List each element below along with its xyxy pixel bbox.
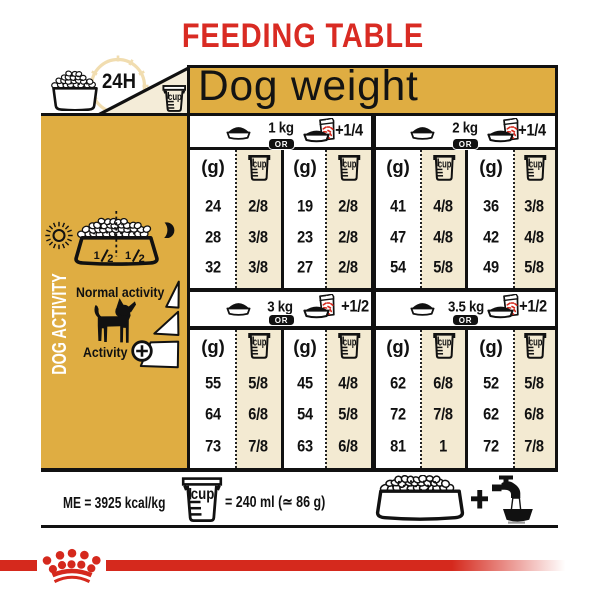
svg-text:2: 2 (107, 253, 113, 265)
svg-text:cup: cup (191, 486, 215, 503)
svg-text:cup: cup (253, 158, 267, 170)
svg-text:1: 1 (94, 250, 100, 262)
svg-text:1: 1 (125, 250, 131, 262)
svg-text:2: 2 (139, 253, 145, 265)
svg-text:cup: cup (168, 91, 182, 103)
